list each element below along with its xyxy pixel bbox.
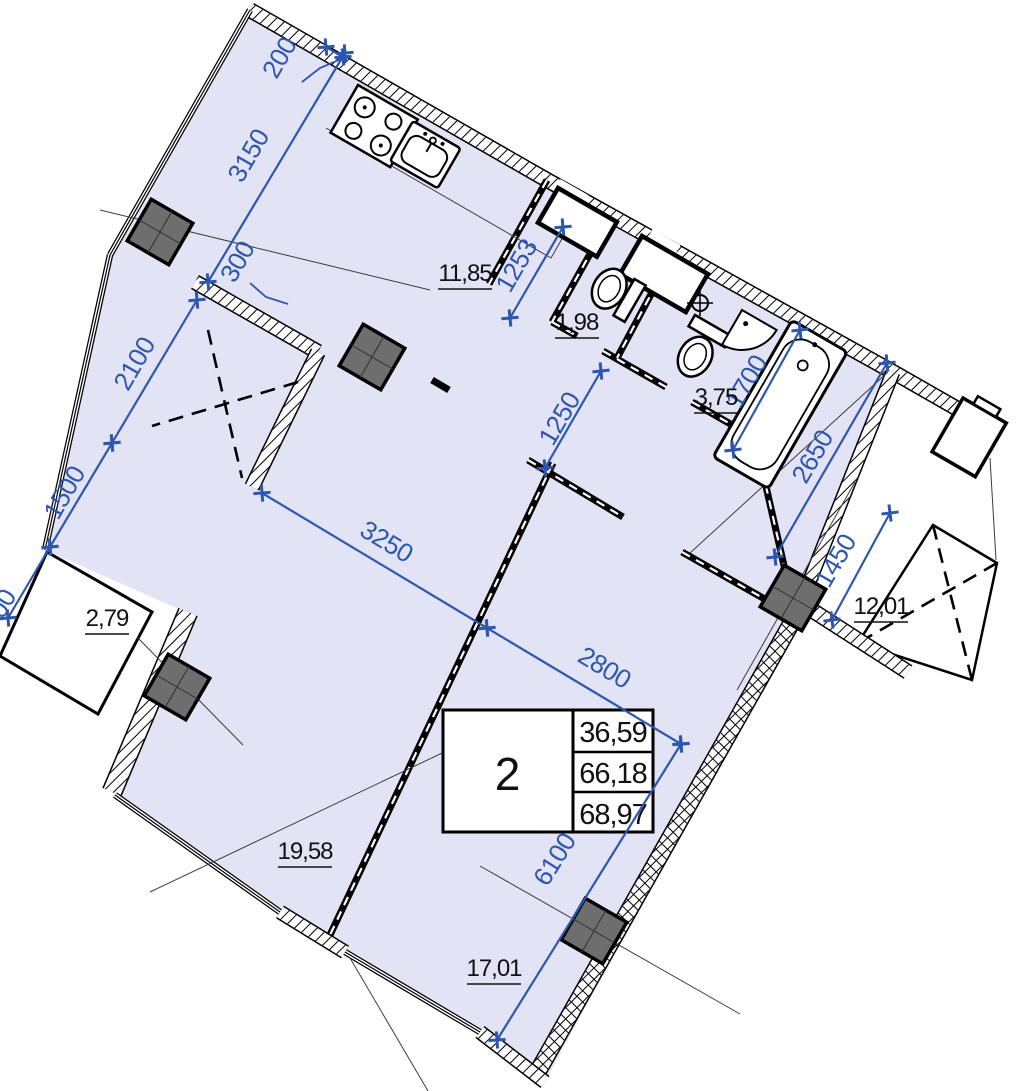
large-room-area-label: 19,58 [277, 838, 333, 865]
table-value-living: 36,59 [579, 717, 647, 749]
kitchen-area-label: 11,85 [438, 260, 492, 287]
floor-plan: 2 36,59 66,18 68,97 200 3150 300 2100 15… [0, 0, 1024, 1091]
right-balcony-area-label: 12,01 [853, 593, 909, 620]
left-balcony-area-label: 2,79 [86, 605, 129, 632]
area-table: 2 36,59 66,18 68,97 [443, 710, 653, 832]
apartment-number: 2 [495, 748, 520, 800]
bathroom-area-label: 3,75 [695, 384, 738, 411]
second-room-area-label: 17,01 [466, 955, 522, 982]
floor-plan-canvas: 2 36,59 66,18 68,97 200 3150 300 2100 15… [0, 0, 1024, 1091]
wc-area-label: 1,98 [556, 309, 599, 336]
table-value-area: 66,18 [579, 758, 647, 790]
